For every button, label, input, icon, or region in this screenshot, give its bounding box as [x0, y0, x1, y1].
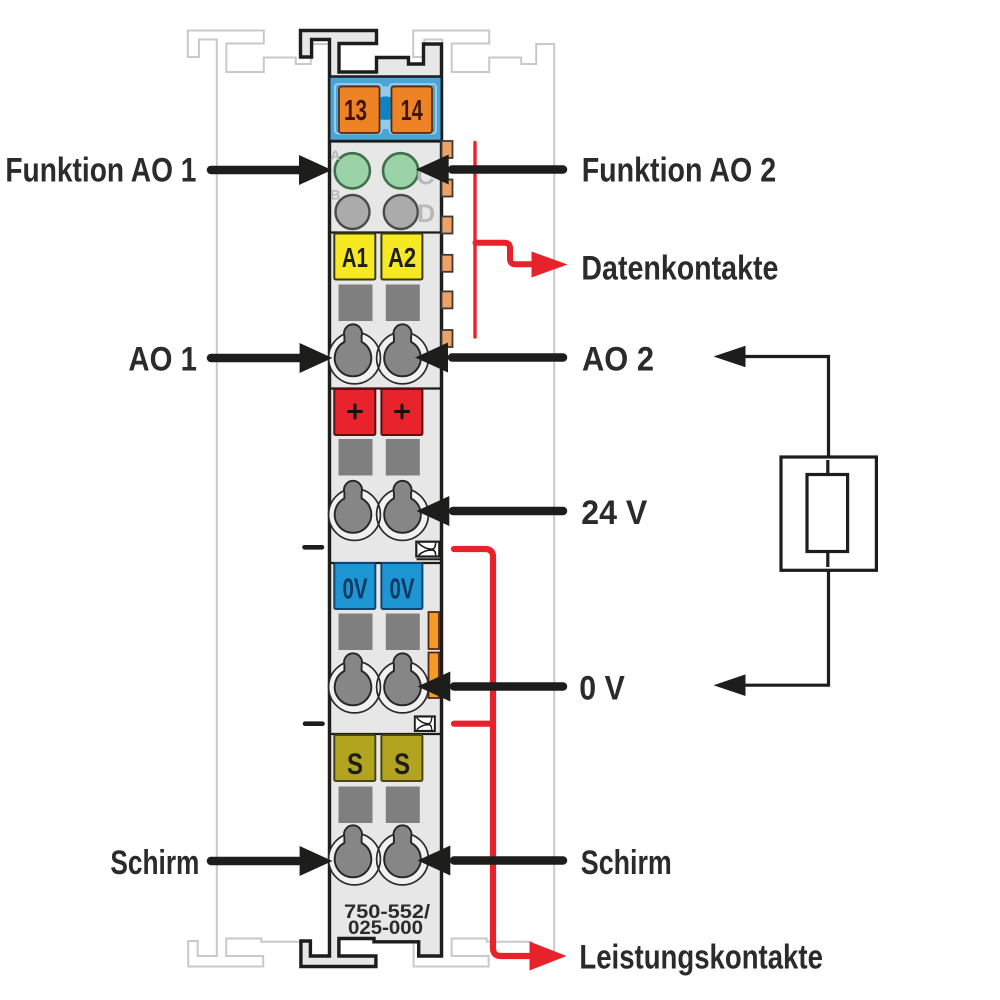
svg-text:0V: 0V [343, 574, 368, 606]
svg-text:Leistungskontakte: Leistungskontakte [579, 938, 823, 976]
svg-text:24 V: 24 V [581, 494, 647, 532]
svg-text:A1: A1 [342, 242, 368, 273]
svg-text:B: B [330, 187, 340, 203]
svg-text:A: A [330, 147, 340, 163]
svg-text:Funktion AO 1: Funktion AO 1 [5, 152, 196, 190]
svg-text:14: 14 [401, 95, 423, 127]
svg-text:Datenkontakte: Datenkontakte [581, 249, 778, 287]
svg-text:D: D [417, 200, 435, 228]
svg-text:13: 13 [344, 95, 367, 127]
svg-text:025-000: 025-000 [348, 918, 423, 939]
svg-text:Schirm: Schirm [581, 844, 672, 882]
svg-text:0 V: 0 V [579, 669, 625, 707]
svg-text:A2: A2 [388, 242, 416, 273]
svg-text:AO 1: AO 1 [128, 341, 197, 379]
svg-text:S: S [347, 748, 363, 781]
svg-text:Funktion AO 2: Funktion AO 2 [582, 152, 777, 190]
svg-text:AO 2: AO 2 [582, 341, 654, 379]
svg-text:S: S [394, 748, 410, 781]
svg-text:0V: 0V [390, 574, 415, 606]
svg-text:Schirm: Schirm [110, 844, 199, 882]
